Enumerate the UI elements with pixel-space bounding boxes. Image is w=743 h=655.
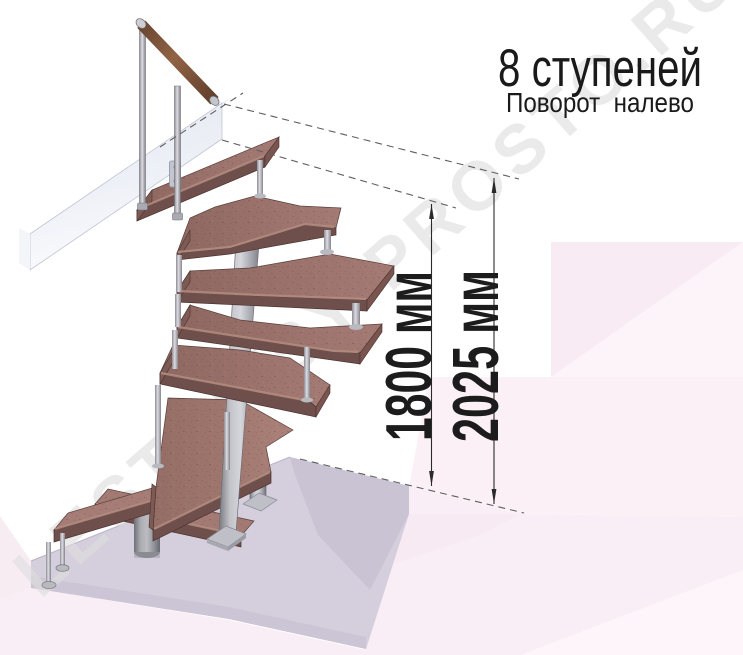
svg-text:Поворот налево: Поворот налево — [506, 87, 694, 118]
svg-text:1800 мм: 1800 мм — [372, 271, 445, 441]
svg-text:2025 мм: 2025 мм — [439, 270, 512, 442]
